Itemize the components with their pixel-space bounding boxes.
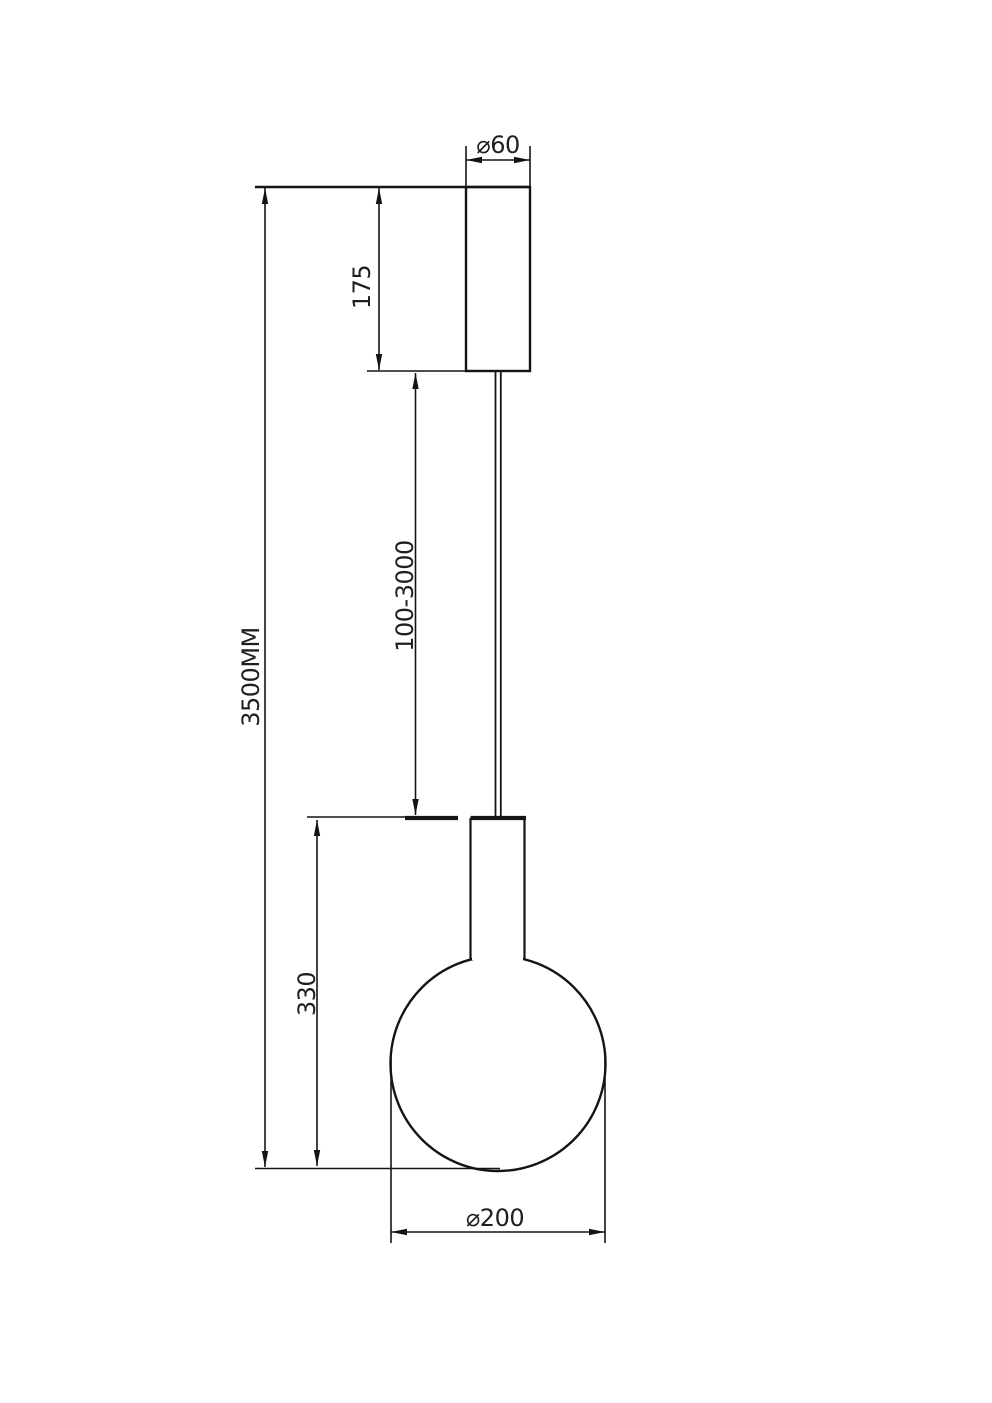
arrow-suspension-bottom (412, 799, 418, 815)
pendant-lamp-diagram: ⌀60 175 100-3000 3500MM 330 ⌀200 (0, 0, 992, 1403)
label-suspension-length: 100-3000 (391, 540, 419, 652)
arrow-suspension-top (412, 373, 418, 389)
arrow-shade-height-bottom (314, 1150, 320, 1166)
globe-outline (391, 956, 606, 1171)
lamp-outline-group (255, 187, 606, 1171)
arrowheads-group (262, 157, 605, 1235)
label-shade-diameter: ⌀200 (466, 1204, 524, 1232)
globe-neck-mask (472, 950, 523, 960)
label-canopy-diameter: ⌀60 (476, 131, 520, 159)
arrow-canopy-height-top (376, 188, 382, 204)
arrow-shade-dia-right (589, 1229, 605, 1235)
dimension-lines-group (255, 146, 605, 1243)
arrow-overall-top (262, 188, 268, 204)
label-shade-height: 330 (293, 972, 321, 1016)
arrow-canopy-height-bottom (376, 354, 382, 370)
arrow-shade-height-top (314, 820, 320, 836)
label-overall-height: 3500MM (237, 627, 265, 727)
dimension-labels-group: ⌀60 175 100-3000 3500MM 330 ⌀200 (237, 131, 524, 1232)
canopy-outline (466, 187, 530, 371)
arrow-overall-bottom (262, 1151, 268, 1167)
socket-neck-group (471, 818, 525, 959)
arrow-shade-dia-left (391, 1229, 407, 1235)
dimension-drawing-canvas: ⌀60 175 100-3000 3500MM 330 ⌀200 (0, 0, 992, 1403)
label-canopy-height: 175 (348, 265, 376, 309)
